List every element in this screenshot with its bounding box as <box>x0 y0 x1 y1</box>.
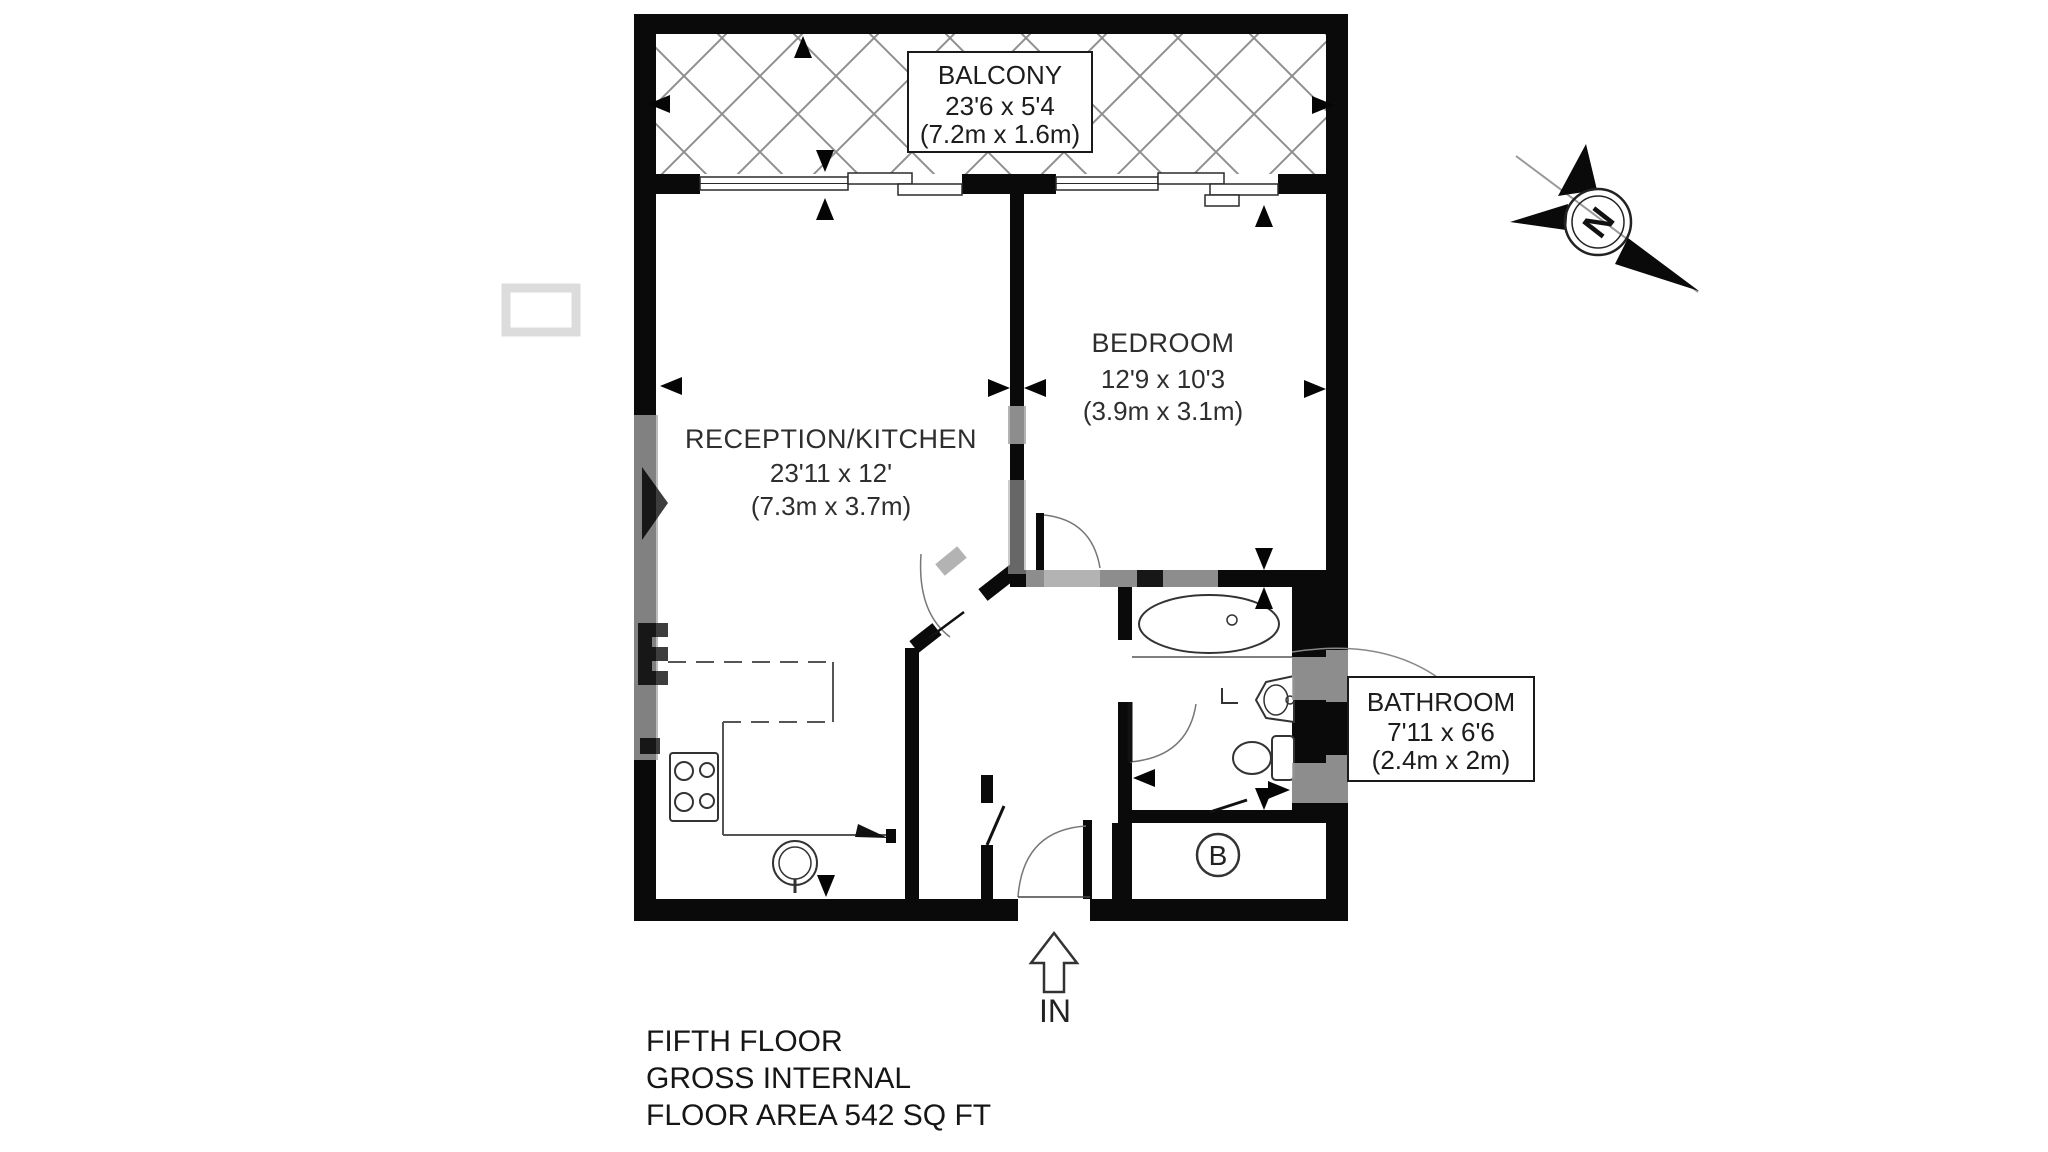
sliding-door-symbol <box>1158 173 1278 206</box>
bathroom-size-imperial: 7'11 x 6'6 <box>1387 717 1495 747</box>
hall-diagonal-wall-stub <box>914 629 937 647</box>
entrance-marker: IN <box>1031 933 1077 1029</box>
arrow-up-icon <box>1255 205 1273 227</box>
balcony-size-metric: (7.2m x 1.6m) <box>920 119 1080 149</box>
compass-north-letter: N <box>1574 199 1622 245</box>
cupboard-door-leaf <box>855 824 888 838</box>
reception-label: RECEPTION/KITCHEN 23'11 x 12' (7.3m x 3.… <box>685 424 977 521</box>
arrow-up-icon <box>1255 587 1273 609</box>
kitchen-fixtures <box>668 662 896 893</box>
footer-line-2: GROSS INTERNAL <box>646 1062 911 1095</box>
window-symbol <box>1056 177 1158 190</box>
bedroom-size-imperial: 12'9 x 10'3 <box>1101 364 1225 394</box>
door-openings <box>980 569 1133 845</box>
boiler-letter: B <box>1209 840 1228 871</box>
bathroom-size-metric: (2.4m x 2m) <box>1372 745 1511 775</box>
bathroom-door-stop <box>1222 688 1238 703</box>
bedroom-label: BEDROOM 12'9 x 10'3 (3.9m x 3.1m) <box>1083 328 1243 426</box>
arrow-down-icon <box>1255 548 1273 570</box>
arrow-left-icon <box>1133 769 1155 787</box>
arrow-right-icon <box>1304 380 1326 398</box>
arrow-down-icon <box>817 875 835 897</box>
arrow-left-icon <box>660 377 682 395</box>
bedroom-size-metric: (3.9m x 3.1m) <box>1083 396 1243 426</box>
bathroom-name: BATHROOM <box>1367 687 1515 717</box>
floor-plan-page: RECEPTION/KITCHEN 23'11 x 12' (7.3m x 3.… <box>0 0 2048 1152</box>
balcony-size-imperial: 23'6 x 5'4 <box>945 91 1055 121</box>
arrow-up-icon <box>816 198 834 220</box>
north-compass-icon: N <box>1510 144 1699 292</box>
footer-block: FIFTH FLOOR GROSS INTERNAL FLOOR AREA 54… <box>646 1025 991 1132</box>
reception-size-metric: (7.3m x 3.7m) <box>751 491 911 521</box>
reception-size-imperial: 23'11 x 12' <box>770 458 892 488</box>
arrow-right-icon <box>1268 781 1290 799</box>
cupboard-jamb <box>886 829 896 843</box>
interior-walls <box>905 194 1348 901</box>
bedroom-name: BEDROOM <box>1091 328 1234 358</box>
bathroom-fixtures <box>1132 595 1294 780</box>
window-symbol <box>700 177 848 190</box>
balcony-name: BALCONY <box>938 60 1062 90</box>
entrance-label: IN <box>1039 993 1071 1029</box>
wash-basin <box>1256 676 1294 722</box>
sink <box>773 841 817 893</box>
entrance-arrow-icon <box>1031 933 1077 992</box>
stove <box>670 753 718 821</box>
footer-line-1: FIFTH FLOOR <box>646 1025 843 1058</box>
toilet <box>1233 736 1294 780</box>
boiler-symbol: B <box>1197 834 1239 876</box>
footer-line-3: FLOOR AREA 542 SQ FT <box>646 1099 991 1132</box>
reception-name: RECEPTION/KITCHEN <box>685 424 977 454</box>
arrow-right-icon <box>988 379 1010 397</box>
floor-plan-drawing: RECEPTION/KITCHEN 23'11 x 12' (7.3m x 3.… <box>0 0 2048 1152</box>
sliding-door-symbol <box>848 173 962 195</box>
balcony-wall-with-windows <box>656 173 1326 206</box>
arrow-left-icon <box>1024 379 1046 397</box>
balcony-label: BALCONY 23'6 x 5'4 (7.2m x 1.6m) <box>908 52 1092 152</box>
